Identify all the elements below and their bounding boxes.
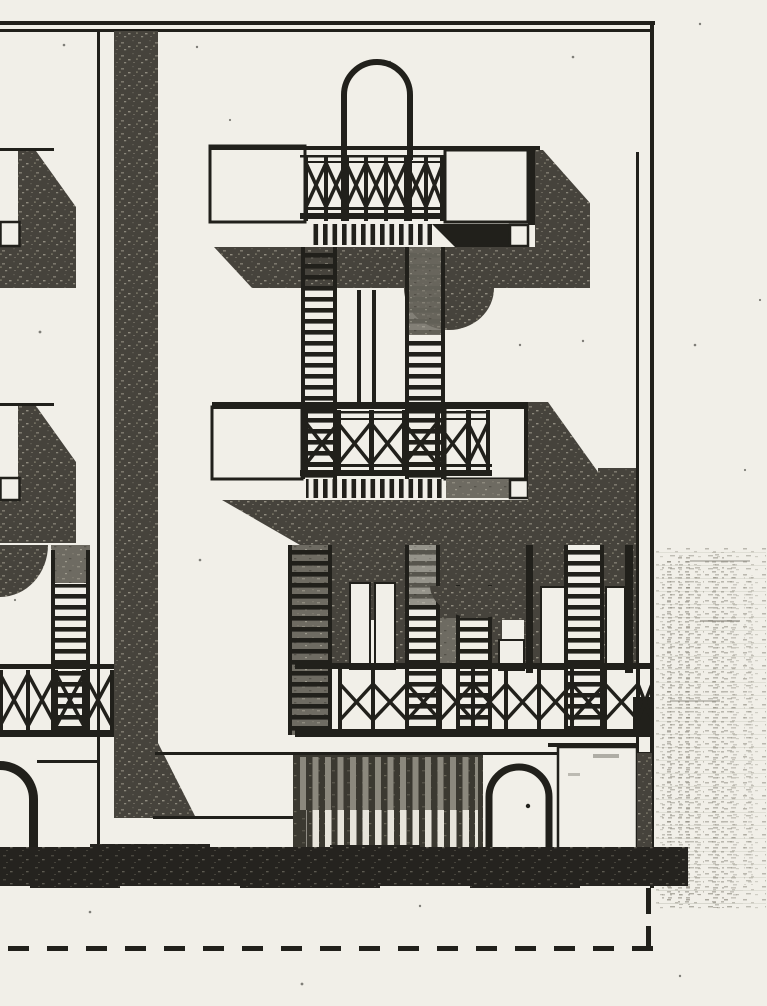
frame-top-line-outer — [0, 21, 655, 25]
loggia-ladder-pillar — [405, 545, 440, 735]
loggia-ladder-pillar — [288, 545, 332, 735]
architectural-elevation-scan — [0, 0, 767, 1006]
center-thin-post — [357, 290, 361, 405]
frame-left-line — [97, 29, 100, 849]
elevation-drawing-svg — [0, 0, 767, 1006]
center-thin-post — [372, 290, 376, 405]
middle-slat-fascia — [306, 479, 446, 498]
loggia-dark-post — [625, 545, 633, 673]
ground-band — [0, 844, 688, 888]
left-wall-panel-line — [37, 760, 97, 763]
loggia-dark-post — [526, 545, 533, 673]
upper-slat-fascia — [312, 224, 432, 245]
ground-floor-corner-strip — [637, 753, 652, 850]
slatted-gate — [293, 755, 483, 849]
upper-soffit-shadow-band — [214, 247, 590, 288]
ground-step-line — [153, 816, 295, 819]
wall-panel — [548, 743, 638, 850]
